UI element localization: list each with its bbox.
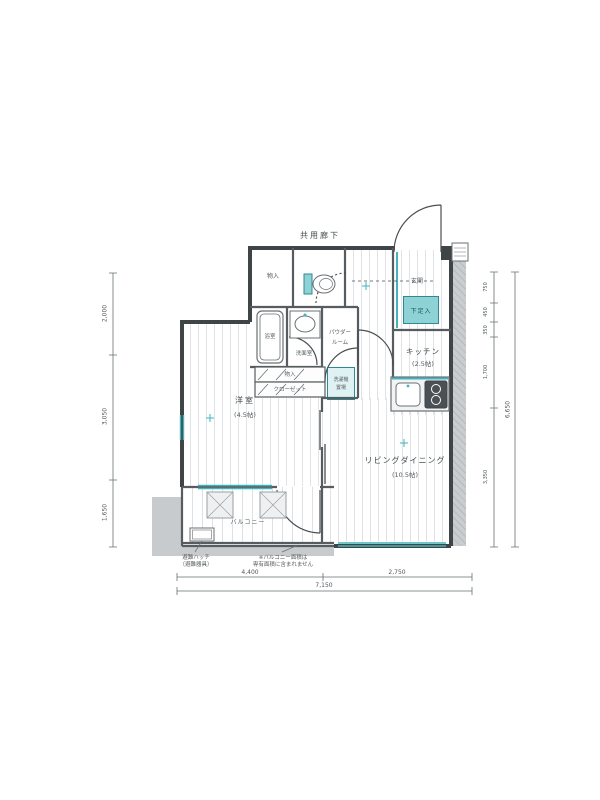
living-dining-size-label: (10.5帖)	[355, 469, 455, 479]
washbasin	[290, 311, 320, 338]
balcony-skylights	[207, 492, 286, 518]
dim-bottom-right: 2,750	[372, 569, 422, 576]
hatch-note-line2: （避難器具）	[168, 560, 224, 568]
washroom-label: 洗面室	[285, 349, 323, 357]
dim-bottom-left: 4,400	[225, 569, 275, 576]
hall-door-arc	[358, 330, 393, 365]
closet-band-label: クローゼット	[255, 385, 325, 393]
floor-plan: 下足入 洗濯機 置場	[0, 0, 600, 800]
stove	[425, 381, 447, 408]
dim-left-1: 2,000	[102, 294, 109, 334]
dim-right-total: 6,650	[505, 395, 512, 425]
powder-room-label-2: ルーム	[323, 338, 357, 346]
corridor-label: 共用廊下	[268, 230, 372, 241]
storage-band-label: 物入	[255, 370, 325, 378]
powder-room-label-1: パウダー	[323, 328, 357, 336]
kitchen-label: キッチン	[396, 346, 450, 357]
dim-left-2: 3,050	[102, 397, 109, 437]
bedroom-label: 洋室	[215, 395, 275, 406]
living-dining-label: リビングダイニング	[355, 455, 455, 466]
kitchen-size-label: (2.5帖)	[396, 358, 450, 368]
dim-right-5: 3,350	[483, 465, 489, 489]
dim-left-3: 1,650	[102, 493, 109, 533]
dim-right-3: 350	[483, 318, 489, 342]
bedroom-size-label: (4.5帖)	[215, 409, 275, 419]
bath-label: 浴室	[252, 332, 288, 340]
upper-closet-label: 物入	[253, 271, 293, 280]
escape-hatch	[190, 528, 214, 541]
dim-bottom-total: 7,150	[299, 582, 349, 589]
dim-right-4: 1,700	[483, 360, 489, 384]
toilet	[304, 274, 335, 294]
entrance-label: 玄関	[403, 276, 431, 285]
pillar-top-right	[441, 246, 453, 260]
entrance-door-arc	[394, 205, 441, 252]
powder-door-arc	[325, 348, 358, 381]
dim-right-1: 750	[483, 275, 489, 299]
meter-box	[452, 243, 468, 261]
balcony-note-line2: 専有面積に含まれません	[240, 560, 326, 568]
kitchen-counter	[391, 377, 449, 411]
balcony-label: バルコニー	[210, 517, 286, 526]
